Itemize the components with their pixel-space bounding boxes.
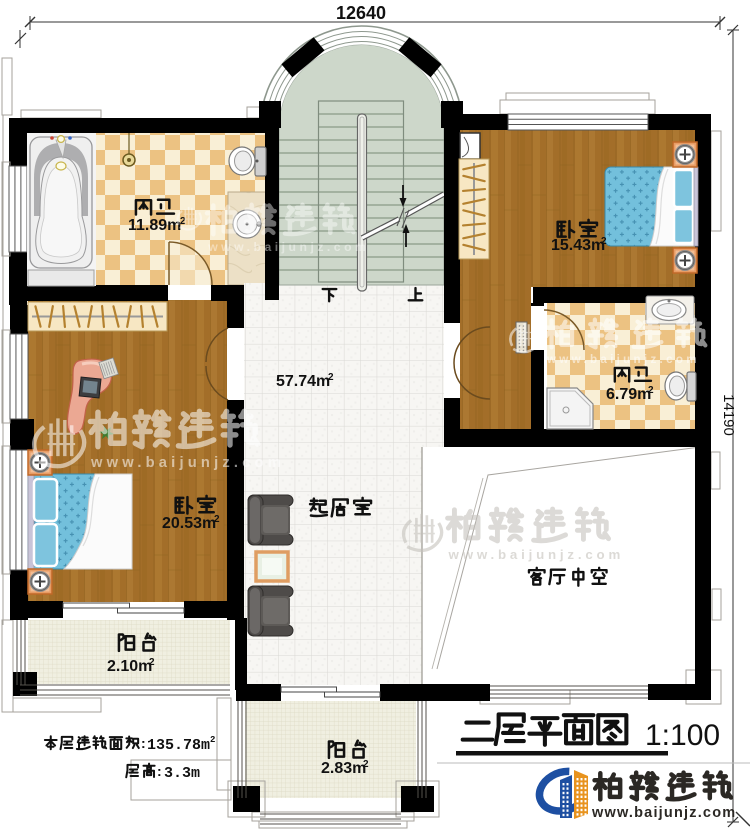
- svg-text:2: 2: [210, 735, 215, 745]
- svg-text:11.89m: 11.89m: [128, 217, 181, 234]
- svg-text:135.78m: 135.78m: [147, 737, 210, 754]
- svg-text:6.79m: 6.79m: [606, 386, 651, 403]
- svg-text:www.baijunjz.com: www.baijunjz.com: [448, 547, 625, 562]
- svg-text:www.baijunjz.com: www.baijunjz.com: [90, 455, 285, 471]
- svg-text:57.74m: 57.74m: [276, 373, 330, 390]
- svg-text:www.baijunjz.com: www.baijunjz.com: [546, 353, 700, 366]
- svg-text:www.baijunjz.com: www.baijunjz.com: [591, 805, 736, 821]
- svg-text:2: 2: [149, 657, 155, 668]
- svg-text:2: 2: [648, 385, 654, 396]
- svg-text:3.3m: 3.3m: [164, 765, 200, 782]
- svg-text::: :: [157, 763, 162, 779]
- svg-text:2: 2: [363, 759, 369, 770]
- svg-text::: :: [141, 735, 146, 751]
- svg-text:2.10m: 2.10m: [107, 658, 152, 675]
- svg-text:1:100: 1:100: [645, 719, 720, 752]
- svg-text:20.53m: 20.53m: [162, 515, 216, 532]
- svg-text:2: 2: [328, 372, 334, 383]
- svg-text:2.83m: 2.83m: [321, 760, 366, 777]
- svg-text:2: 2: [214, 514, 220, 525]
- svg-text:15.43m: 15.43m: [551, 237, 605, 254]
- svg-text:www.baijunjz.com: www.baijunjz.com: [207, 240, 369, 254]
- svg-text:2: 2: [601, 236, 607, 247]
- svg-text:14190: 14190: [720, 394, 737, 436]
- svg-text:12640: 12640: [336, 3, 386, 23]
